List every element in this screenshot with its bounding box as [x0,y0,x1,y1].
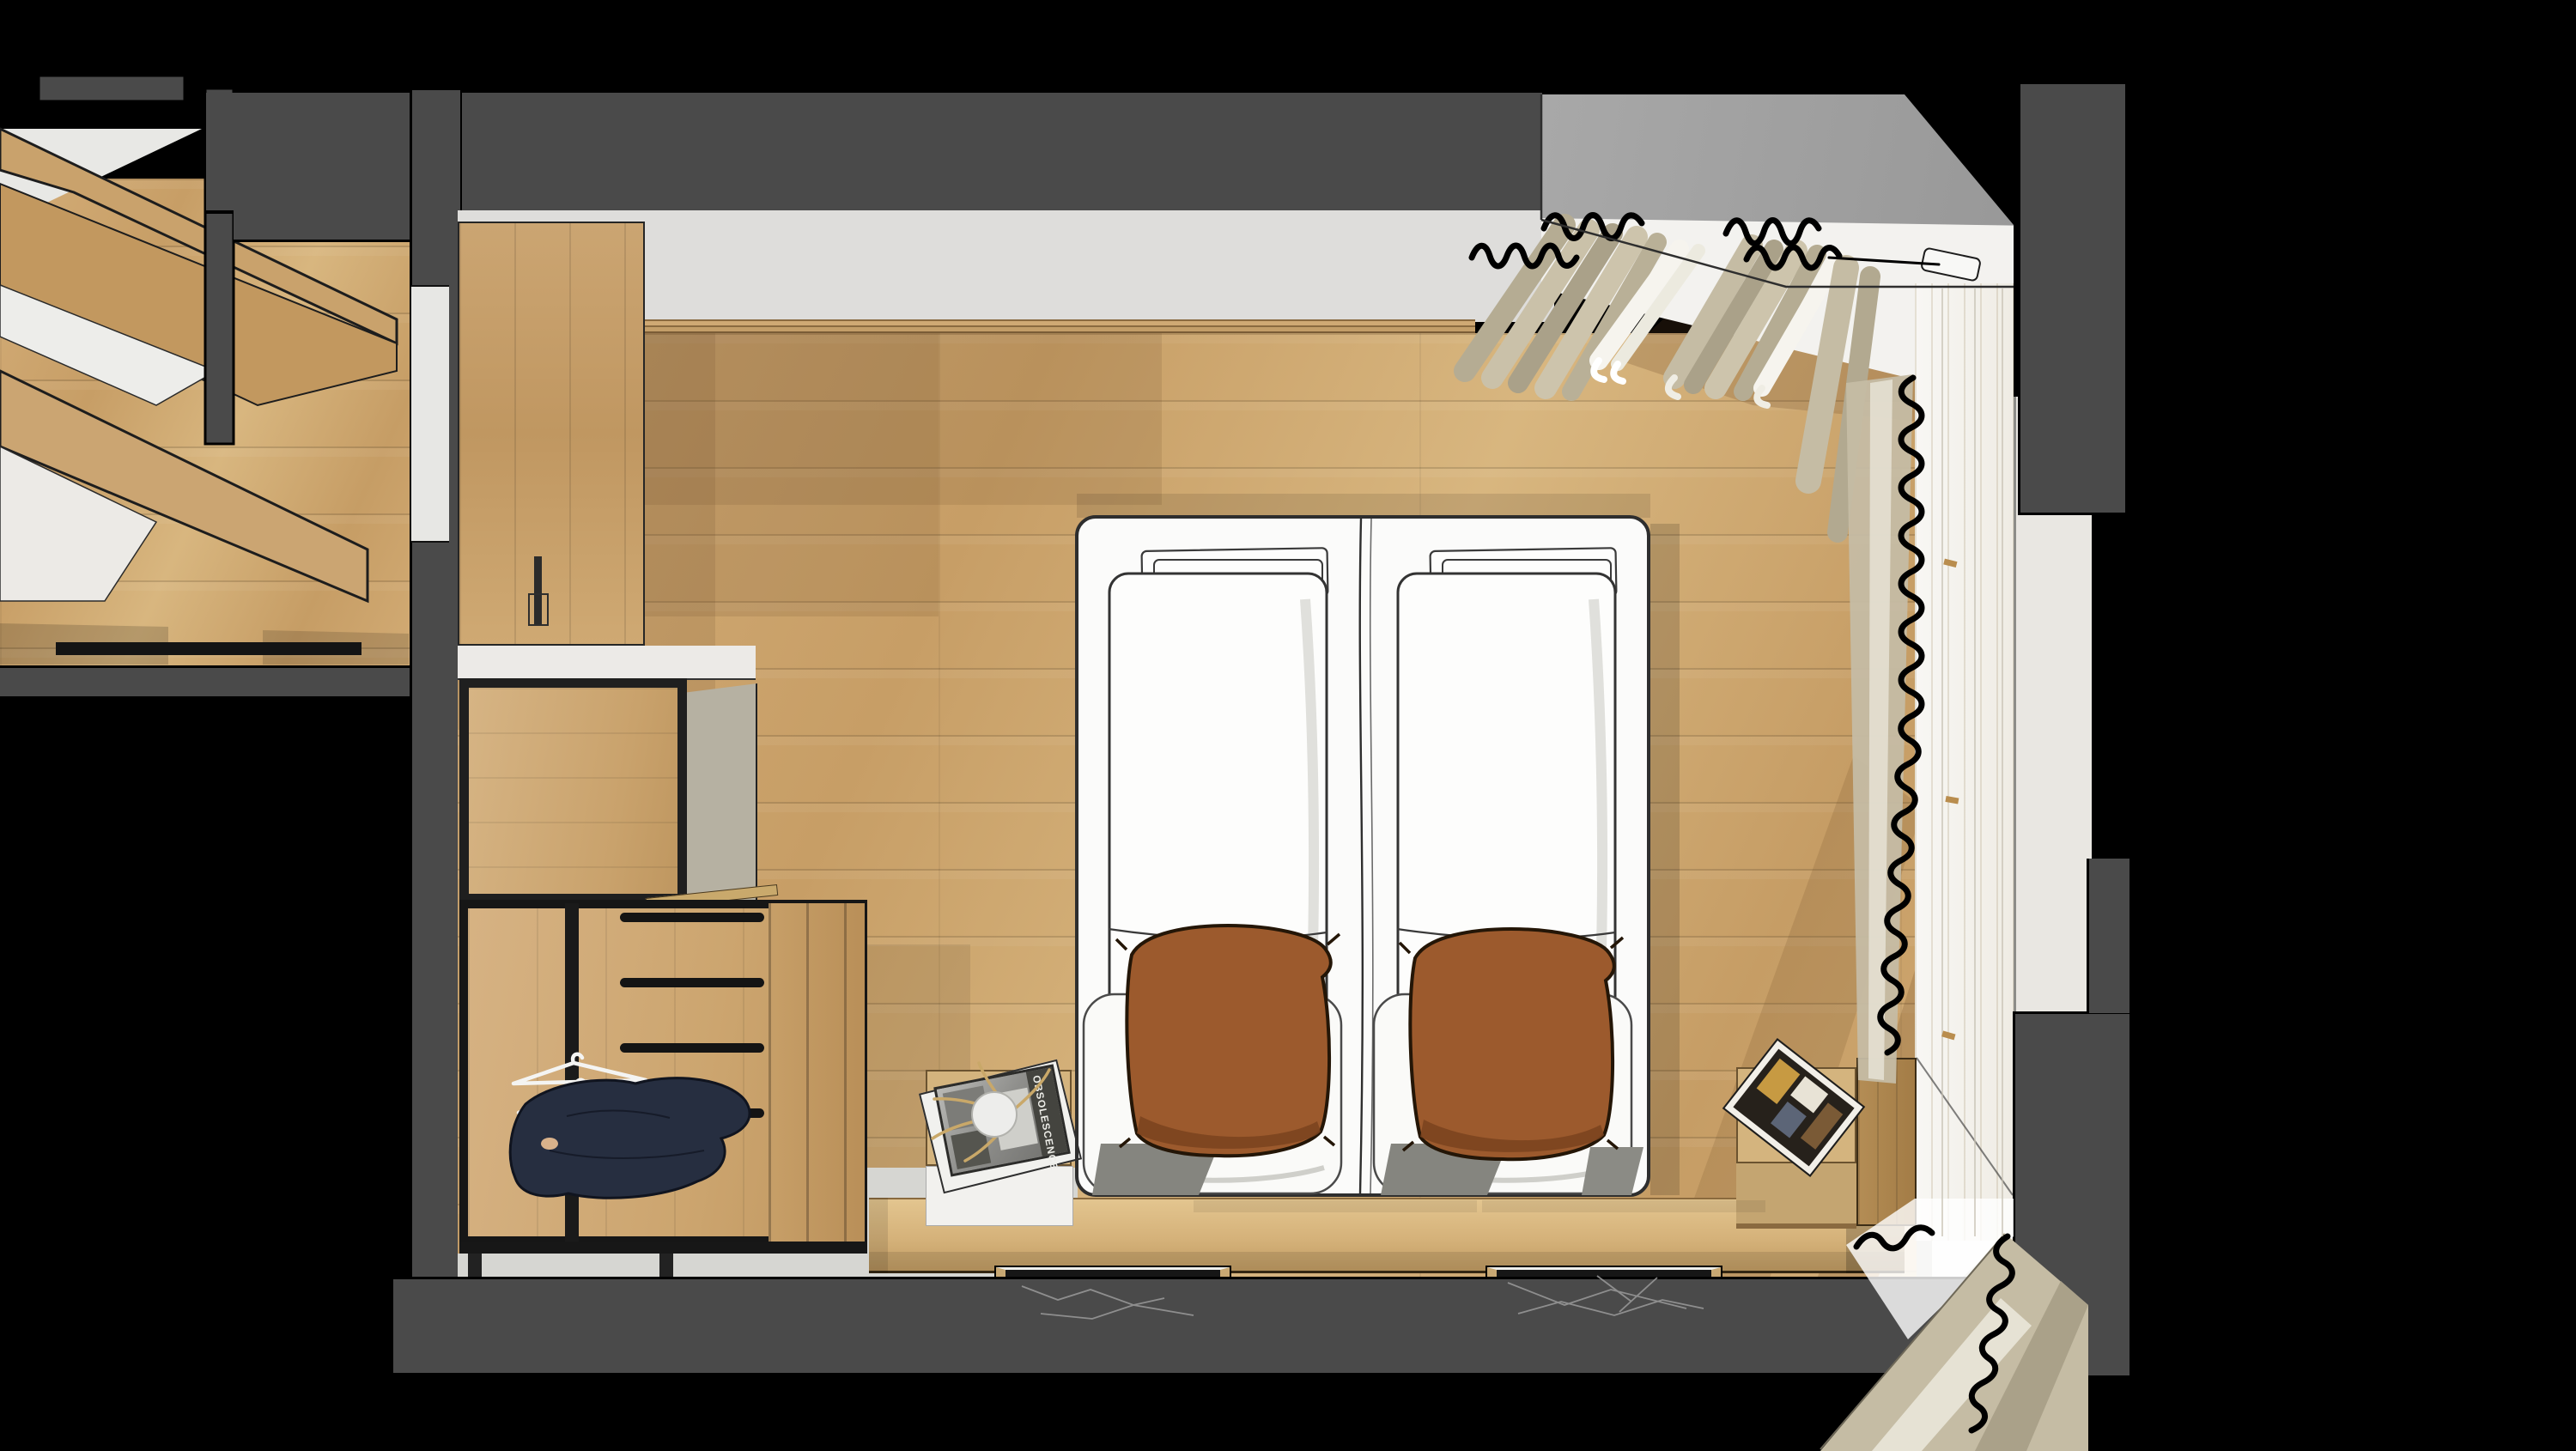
bedside-panel-right [1856,1058,1917,1226]
wardrobe-rail-pole [565,903,579,1247]
wardrobe-side-panels [769,903,865,1242]
wall-bottom [393,1277,2129,1375]
wall-cabinet-side [687,683,757,905]
wardrobe-shelf-3 [620,1043,764,1053]
magazine-left-title: OBSOLESCENCE [1030,1074,1060,1171]
door-panel [458,222,645,646]
magazine-left-photo-1 [943,1085,991,1130]
window-pier-top-right [2018,82,2128,515]
wall-cabinet [459,678,687,903]
door-handle [534,556,542,625]
wall-top [206,93,1542,214]
wall-right-wedge [2087,859,2129,1013]
wardrobe-shelf-1 [620,913,764,922]
wall-gap-white [458,646,756,680]
wall-left-door-jamb [411,285,449,543]
bed-block [1077,517,1649,1195]
wardrobe-shelf-4 [620,1108,764,1118]
wall-top-corner-return [234,210,410,242]
hall-wall-strip [39,76,185,101]
wall-right-lower [2013,1011,2129,1375]
wardrobe-shelf-2 [620,978,764,987]
wall-left [410,90,462,1375]
magazine-left-photo-2 [951,1129,991,1169]
hall-table-edge [56,642,361,655]
hall-wall-band [0,665,410,699]
nightstand-right-front [1736,1163,1856,1229]
window-sheer [1915,283,2014,1241]
bedroom-top-view: OBSOLESCENCE [0,0,2576,1451]
magazine-right-photo-slate [1771,1102,1807,1138]
wardrobe-base-bar [459,1242,867,1254]
